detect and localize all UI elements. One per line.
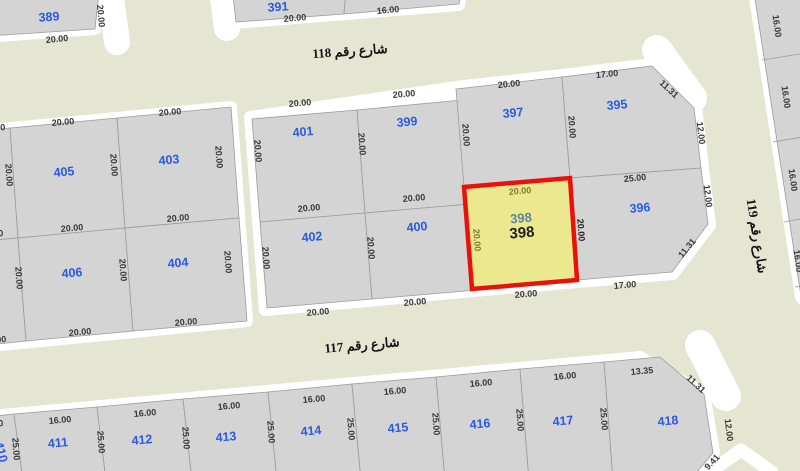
parcel-400[interactable]: [365, 204, 477, 299]
dimension-label: 20.00: [51, 116, 74, 128]
dimension-label: 20.00: [403, 296, 426, 308]
dimension-label: 25.00: [10, 437, 22, 460]
dimension-label: 20.00: [471, 228, 483, 251]
dimension-label: 25.00: [430, 412, 442, 435]
dimension-label: 20.00: [514, 288, 537, 300]
parcel-number-404: 404: [167, 255, 189, 271]
dimension-label: 16.00: [553, 370, 576, 382]
dimension-label: 25.00: [598, 407, 610, 430]
dimension-label: 20.00: [158, 106, 181, 118]
dimension-label: 17.00: [613, 279, 636, 291]
parcel-number-417: 417: [552, 413, 574, 429]
dimension-label: 25.00: [345, 417, 357, 440]
parcel-number-402: 402: [301, 229, 323, 245]
dimension-label: 16.00: [217, 400, 240, 412]
dimension-label: 25.00: [95, 430, 107, 453]
parcel-number-395: 395: [606, 97, 628, 113]
parcel-number-396: 396: [629, 200, 651, 216]
dimension-label: 20.00: [402, 192, 425, 204]
dimension-label: 20.00: [174, 316, 197, 328]
parcel-404[interactable]: [125, 218, 247, 331]
road-edge-curve: [110, 0, 117, 42]
parcel-number-406: 406: [61, 265, 83, 281]
dimension-label: 20.00: [252, 139, 264, 162]
dimension-label: 25.00: [514, 408, 526, 431]
dimension-label: 20.00: [13, 266, 25, 289]
dimension-label: 16.00: [469, 377, 492, 389]
parcel-number-403: 403: [158, 152, 180, 168]
parcel-number-391: 391: [267, 0, 289, 15]
dimension-label: 16.00: [302, 393, 325, 405]
dimension-label: 20.00: [260, 246, 272, 269]
dimension-label: 16.00: [383, 385, 406, 397]
parcel-number-412: 412: [131, 432, 153, 448]
parcel-number-405: 405: [53, 164, 75, 180]
dimension-label: 25.00: [265, 420, 277, 443]
parcel-406[interactable]: [18, 228, 133, 341]
parcel-number-411: 411: [47, 435, 68, 451]
dimension-label: 20.00: [288, 97, 311, 109]
parcel-402[interactable]: [260, 213, 372, 308]
dimension-label: 20.00: [297, 202, 320, 214]
dimension-label: 20.00: [95, 4, 107, 27]
cadastral-map-svg: 20.0020.0020.0016.0016.0016.0016.0016.00…: [0, 0, 800, 471]
parcel-397[interactable]: [456, 77, 570, 187]
dimension-label: 20.00: [108, 153, 120, 176]
dimension-label: 20.00: [460, 123, 472, 146]
dimension-label: 16.00: [48, 414, 71, 426]
dimension-label: 13.35: [630, 365, 653, 377]
dimension-label: 25.00: [180, 426, 192, 449]
parcel-number-397: 397: [502, 105, 524, 121]
dimension-label: 20.00: [356, 132, 368, 155]
dimension-label: 20.00: [60, 222, 83, 234]
dimension-label: 20.00: [306, 306, 329, 318]
dimension-label: 20.00: [213, 145, 225, 168]
dimension-label: 20.00: [566, 115, 578, 138]
parcel-number-418: 418: [657, 413, 679, 429]
dimension-label: 20.00: [222, 250, 234, 273]
dimension-label: 16.00: [133, 407, 156, 419]
dimension-label: 20.00: [283, 12, 306, 24]
parcel-number-416: 416: [469, 416, 491, 432]
dimension-label: 20.00: [117, 258, 129, 281]
parcel-number-400: 400: [406, 219, 428, 235]
parcel-number-415: 415: [387, 420, 409, 436]
dimension-label: 20.00: [392, 88, 415, 100]
dimension-label: 20.00: [3, 163, 15, 186]
dimension-label: 20.00: [365, 236, 377, 259]
dimension-label: 20.00: [68, 326, 91, 338]
dimension-label: 16.00: [376, 4, 399, 16]
parcel-number-399: 399: [396, 114, 418, 130]
parcel-number-389: 389: [38, 9, 60, 24]
dimension-label: 20.00: [166, 212, 189, 224]
dimension-label: 20.00: [508, 185, 531, 197]
parcel-number-398-bold: 398: [509, 223, 535, 242]
parcel-number-414: 414: [300, 423, 322, 439]
dimension-label: 20.00: [575, 218, 587, 241]
cadastral-map-viewport: 20.0020.0020.0016.0016.0016.0016.0016.00…: [0, 0, 800, 471]
parcel-number-413: 413: [215, 429, 237, 445]
parcel-number-401: 401: [292, 124, 314, 140]
